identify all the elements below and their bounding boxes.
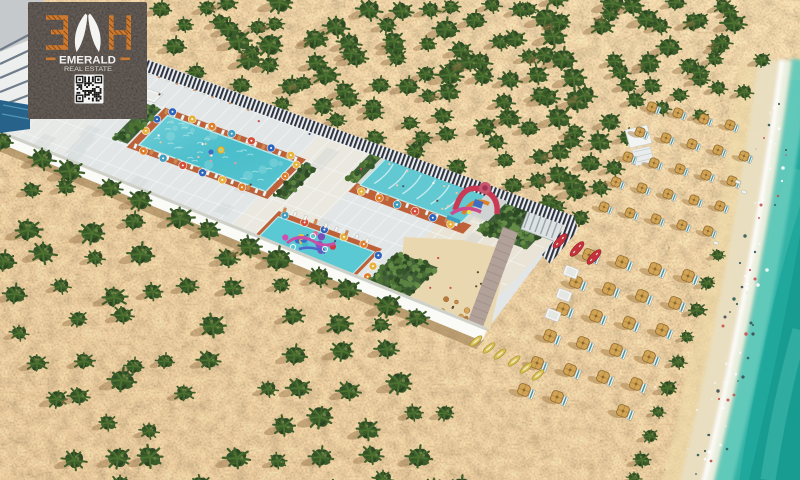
svg-text:EMERALD: EMERALD: [59, 55, 116, 67]
svg-text:REAL ESTATE: REAL ESTATE: [64, 67, 112, 73]
